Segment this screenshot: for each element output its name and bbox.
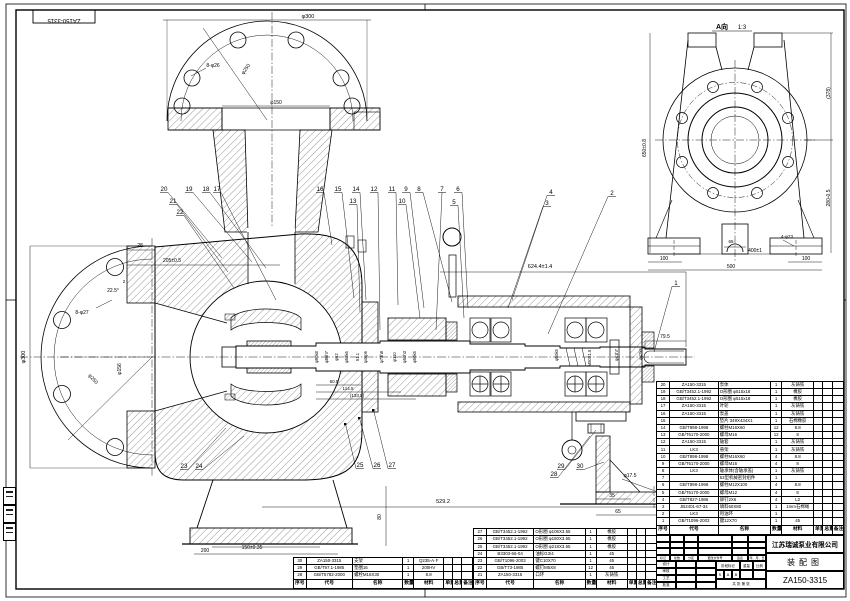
balloon-leader — [508, 207, 543, 309]
bom-cell — [636, 543, 645, 550]
balloon-number: 22 — [177, 209, 184, 216]
bom-row: 30ZA150-3315支架1Q235-A·F — [294, 557, 473, 564]
bom-cell: 1 — [657, 518, 670, 525]
sig-row-label: 批准 — [656, 582, 676, 589]
bom-cell: 支架 — [353, 557, 403, 564]
dimension-text: φ17.5 — [624, 473, 637, 479]
balloon-number: 3 — [545, 200, 549, 207]
bom-cell: O形圈 φ515x18 — [718, 396, 770, 403]
sig-row-cell — [696, 568, 716, 575]
bom-cell — [636, 565, 645, 572]
bom-row: 3JB2401-67-34填料50X8011mm石棉绳 — [657, 503, 844, 510]
bom-cell: GB/T898-1998 — [670, 482, 719, 489]
bom-row: 4GB/T827-1986铆钉2X64L2 — [657, 496, 844, 503]
dimension-text: φ50h3 — [402, 350, 407, 363]
bom-cell — [823, 482, 832, 489]
drawing-title: 装配图 — [766, 553, 844, 571]
bom-header-cell: 总重 — [823, 525, 832, 535]
bom-cell — [814, 518, 823, 525]
bom-cell: GB/T3452.1-1992 — [486, 536, 534, 543]
balloon-number: 15 — [335, 186, 342, 193]
bom-cell — [832, 403, 843, 410]
edge-zone-box — [3, 523, 16, 541]
bom-cell: 12 — [771, 432, 782, 439]
bom-cell — [814, 396, 823, 403]
bom-cell: 16 — [657, 410, 670, 417]
bom-cell: 53型机械密封组件 — [718, 475, 770, 482]
bom-row: 18GB/T3452.1-1992O形圈 φ515x181橡胶 — [657, 396, 844, 403]
bom-header-row: 序号代号名称数量材料单重总重备注 — [294, 579, 473, 589]
bom-cell: 螺柱M16X60 — [718, 453, 770, 460]
dimension-text: φ250 — [87, 373, 99, 386]
bom-cell — [646, 565, 657, 572]
stage-label: 阶段标记 — [716, 561, 740, 570]
bom-cell — [832, 453, 843, 460]
balloon-number: 19 — [186, 186, 193, 193]
bom-row: 19GB/T3452.1-1992O形圈 φ515x181橡胶 — [657, 388, 844, 395]
bom-row: 15垫片 349X434X11石棉橡胶 — [657, 417, 844, 424]
bom-cell: 口环 — [534, 572, 585, 579]
parts-list-middle: 27GB/T3452.1-1992O形圈 φ106X3.551橡胶26GB/T3… — [473, 528, 657, 589]
bom-cell: 4 — [771, 460, 782, 467]
balloon-number: 9 — [404, 186, 408, 193]
bom-cell — [832, 381, 843, 388]
dimension-text: (133.5) — [350, 393, 365, 398]
balloon-leader — [462, 193, 468, 309]
bom-row: 11LK3悬架1灰铸铁 — [657, 446, 844, 453]
dimension-text: 65 — [728, 239, 734, 244]
dimension-text: φ90k8 — [314, 350, 319, 362]
bom-cell: 1 — [771, 410, 782, 417]
balloon-leader — [558, 436, 590, 478]
bom-cell — [814, 468, 823, 475]
bom-cell: 螺栓M16X30 — [353, 572, 403, 579]
bom-cell: LK3 — [670, 468, 719, 475]
sig-row-label: 审核 — [656, 568, 676, 575]
bom-cell — [832, 482, 843, 489]
bom-cell: GB/T3452.1-1992 — [486, 529, 534, 536]
dimension-text: 529.2 — [436, 499, 450, 505]
bom-cell: ZA150-3315 — [670, 439, 719, 446]
bom-cell — [823, 518, 832, 525]
dimension-text: 65 — [615, 509, 621, 515]
bom-cell: 螺柱M12X100 — [718, 482, 770, 489]
bom-cell: 1 — [403, 557, 414, 564]
scale-value — [753, 570, 766, 579]
bom-row: 8LK3轴承体(含轴承盖)1灰铸铁 — [657, 468, 844, 475]
bom-header-cell: 总重 — [636, 579, 645, 589]
bom-cell — [462, 572, 473, 579]
dimension-text: 4-φ23 — [781, 234, 793, 239]
sig-row-cell — [696, 561, 716, 568]
dimension-text: 100 — [660, 256, 669, 262]
bom-cell: 8.8 — [782, 424, 814, 431]
bom-cell — [814, 424, 823, 431]
dimension-text: 205±0.5 — [163, 258, 181, 264]
dimension-text: 100 — [802, 256, 811, 262]
edge-zone-box — [3, 505, 16, 523]
bom-cell: ZA150-3315 — [670, 381, 719, 388]
bom-cell: 填料50X80 — [718, 503, 770, 510]
bom-cell: 18 — [657, 396, 670, 403]
sig-row-cell — [696, 582, 716, 589]
bom-cell: 叶轮 — [718, 403, 770, 410]
bom-cell: 2 — [657, 511, 670, 518]
bom-cell: GB/T3452.1-1992 — [670, 396, 719, 403]
bom-cell — [823, 446, 832, 453]
bom-cell — [823, 460, 832, 467]
bom-cell: GB/T1096-2003 — [670, 518, 719, 525]
bom-header-cell: 总重 — [453, 579, 462, 589]
bom-row: 12ZA150-3315轴套1灰铸铁 — [657, 439, 844, 446]
bom-cell: 1 — [585, 557, 596, 564]
bom-row: 27GB/T3452.1-1992O形圈 φ106X3.551橡胶 — [474, 529, 657, 536]
bom-cell — [814, 403, 823, 410]
bom-cell: 1 — [771, 468, 782, 475]
bom-cell — [444, 557, 453, 564]
bom-cell: 200HV — [413, 565, 443, 572]
bom-cell: 4 — [771, 482, 782, 489]
balloon-number: 17 — [214, 186, 221, 193]
bom-cell: 20 — [657, 381, 670, 388]
bom-cell: 4 — [771, 489, 782, 496]
bom-cell: 螺母M16 — [718, 460, 770, 467]
bom-cell — [814, 460, 823, 467]
bom-cell — [814, 432, 823, 439]
sig-row-label: 工艺 — [656, 575, 676, 582]
balloon-number: 14 — [353, 186, 360, 193]
bom-cell — [814, 496, 823, 503]
balloon-leader — [406, 205, 420, 319]
bom-cell: GB/T5782-2000 — [306, 572, 353, 579]
bom-cell: GB/T3452.1-1992 — [670, 388, 719, 395]
bom-header-cell: 序号 — [474, 579, 487, 589]
bom-header-cell: 备注 — [646, 579, 657, 589]
balloon-number: 2 — [610, 190, 614, 197]
balloon-number: 24 — [196, 463, 203, 470]
dimension-text: φ50k5 — [412, 350, 417, 362]
bom-cell — [832, 511, 843, 518]
bom-cell — [814, 439, 823, 446]
bom-header-cell: 代号 — [306, 579, 353, 589]
bom-cell: 45 — [596, 550, 627, 557]
bom-cell — [453, 557, 462, 564]
bom-cell — [832, 475, 843, 482]
balloon-number: 27 — [389, 462, 396, 469]
bom-cell: 1 — [585, 529, 596, 536]
weight-label: 重量 — [740, 561, 753, 570]
bom-cell — [823, 424, 832, 431]
bom-cell: 28 — [294, 572, 307, 579]
bom-cell: 泵体 — [718, 381, 770, 388]
bom-cell: 8 — [782, 432, 814, 439]
bom-cell: 1 — [585, 536, 596, 543]
bom-row: 21ZA150-3315口环1灰铸铁 — [474, 572, 657, 579]
bom-cell — [782, 511, 814, 518]
bom-header-cell: 材料 — [413, 579, 443, 589]
bom-cell — [823, 381, 832, 388]
bom-cell — [627, 543, 636, 550]
bom-cell — [832, 489, 843, 496]
bom-cell: 14 — [657, 424, 670, 431]
bom-cell — [627, 536, 636, 543]
bom-cell: 1mm石棉绳 — [782, 503, 814, 510]
bom-cell: 1 — [771, 388, 782, 395]
bom-cell — [832, 446, 843, 453]
bom-cell: LK3 — [670, 511, 719, 518]
bom-cell: 键12X70 — [718, 518, 770, 525]
bom-cell: 1 — [771, 503, 782, 510]
bom-cell — [636, 572, 645, 579]
bom-cell — [627, 565, 636, 572]
dimension-text: 624.4±1.4 — [528, 264, 552, 270]
bom-cell: 灰铸铁 — [596, 572, 627, 579]
company-name: 江苏瑞诚泵业有限公司 — [766, 535, 844, 553]
bom-cell — [814, 388, 823, 395]
bom-cell: 1 — [771, 403, 782, 410]
bom-header-row: 序号代号名称数量材料单重总重备注 — [657, 525, 844, 535]
bom-cell: 螺柱M16X60 — [718, 424, 770, 431]
balloon-number: 20 — [161, 186, 168, 193]
bom-cell — [823, 489, 832, 496]
bom-cell: 11 — [657, 446, 670, 453]
bom-cell — [823, 511, 832, 518]
dimension-text: 650±0.8 — [642, 139, 648, 157]
bom-cell: JB2401-67-34 — [670, 503, 719, 510]
balloon-leader — [423, 193, 452, 303]
bom-cell — [814, 475, 823, 482]
bom-cell: 45 — [596, 557, 627, 564]
bom-cell: 4 — [771, 453, 782, 460]
bom-header-cell: 代号 — [670, 525, 719, 535]
bom-cell: 1 — [771, 381, 782, 388]
bom-cell: GB/T97.1-1985 — [306, 565, 353, 572]
bom-row: 2LK3甩油环1 — [657, 511, 844, 518]
bom-cell — [832, 396, 843, 403]
balloon-number: 12 — [371, 186, 378, 193]
bom-header-cell: 数量 — [585, 579, 596, 589]
bom-cell: GB/T898-1998 — [670, 453, 719, 460]
bom-cell: 8.8 — [782, 482, 814, 489]
bom-cell — [782, 475, 814, 482]
stage-mark-b: B — [732, 570, 740, 579]
dimension-text: φ46p6 — [363, 350, 368, 363]
bom-row: 5GB/T6170-2000螺母M1248 — [657, 489, 844, 496]
dimension-text: φ42k6 — [638, 347, 643, 359]
balloon-number: 8 — [417, 186, 421, 193]
bom-cell: ZA150-3315 — [306, 557, 353, 564]
bom-cell — [832, 424, 843, 431]
balloon-leader — [548, 197, 608, 335]
bom-header-cell: 名称 — [353, 579, 403, 589]
bom-cell: 1 — [771, 475, 782, 482]
bom-cell: 1 — [771, 511, 782, 518]
bom-cell — [453, 572, 462, 579]
bom-cell: O形圈 φ515x18 — [718, 388, 770, 395]
dimension-text: 60.5 — [330, 379, 339, 384]
bom-cell — [832, 388, 843, 395]
bom-cell — [814, 489, 823, 496]
bom-header-cell: 名称 — [718, 525, 770, 535]
bom-cell: 12 — [657, 439, 670, 446]
dimension-text: 114.5 — [343, 386, 354, 391]
bom-cell — [814, 511, 823, 518]
bom-header-cell: 序号 — [294, 579, 307, 589]
dimension-text: φ41h7 — [614, 348, 619, 361]
dimension-text: 8-φ27 — [75, 310, 88, 316]
dimension-text: M50X1.5 — [587, 349, 592, 366]
bom-cell: 19 — [657, 388, 670, 395]
bom-row: 25GB/T3452.1-1992O形圈 φ218X3.551橡胶 — [474, 543, 657, 550]
bom-cell — [444, 572, 453, 579]
bom-cell — [627, 529, 636, 536]
view-a-title: A向 — [716, 22, 728, 31]
dimension-text: φ300 — [21, 351, 27, 364]
sig-row-cell — [676, 582, 696, 589]
bom-cell: 1 — [585, 572, 596, 579]
dimension-text: (378) — [826, 87, 832, 99]
dimension-text: 2 — [123, 279, 126, 284]
bom-cell: 1 — [403, 565, 414, 572]
balloon-number: 7 — [440, 186, 444, 193]
bom-cell — [646, 536, 657, 543]
bom-cell: 甩油环 — [718, 511, 770, 518]
sig-row-cell — [676, 568, 696, 575]
bom-row: 20ZA150-3315泵体1灰铸铁 — [657, 381, 844, 388]
bom-row: 9GB/T6170-2000螺母M1648 — [657, 460, 844, 467]
dimension-text: φ73h8 — [379, 350, 384, 363]
bom-cell: 4 — [657, 496, 670, 503]
bom-header-cell: 数量 — [403, 579, 414, 589]
bom-cell — [453, 565, 462, 572]
bom-cell — [670, 417, 719, 424]
bom-header-cell: 单重 — [444, 579, 453, 589]
bom-cell: 铆钉2X6 — [718, 496, 770, 503]
view-a-rear — [648, 31, 833, 270]
bom-cell — [832, 417, 843, 424]
bom-cell: 油标G3/4 — [534, 550, 585, 557]
bom-cell: 8.8 — [413, 572, 443, 579]
bom-row: 24B3303-66-04油标G3/4145 — [474, 550, 657, 557]
dimension-text: φ300 — [302, 14, 315, 20]
bom-cell — [832, 410, 843, 417]
bom-cell: 橡胶 — [782, 396, 814, 403]
bom-cell: 15 — [657, 417, 670, 424]
bom-cell — [832, 518, 843, 525]
bom-cell — [832, 496, 843, 503]
bom-cell: 23 — [474, 557, 487, 564]
bom-cell — [646, 543, 657, 550]
bom-cell — [814, 446, 823, 453]
bom-cell — [462, 565, 473, 572]
sig-row-cell — [696, 575, 716, 582]
dimension-text: ZA150-3315 — [47, 17, 81, 23]
balloon-number: 5 — [452, 199, 456, 206]
bom-cell: 5 — [657, 489, 670, 496]
bom-header-cell: 备注 — [462, 579, 473, 589]
bom-cell — [832, 460, 843, 467]
bom-cell: 13 — [657, 432, 670, 439]
bom-cell — [646, 529, 657, 536]
balloon-number: 30 — [577, 463, 584, 470]
bom-cell — [636, 557, 645, 564]
bom-cell: 灰铸铁 — [782, 403, 814, 410]
bom-cell: 橡胶 — [596, 529, 627, 536]
bom-cell: 橡胶 — [782, 388, 814, 395]
bom-cell: O形圈 φ218X3.55 — [534, 543, 585, 550]
bom-cell: 1 — [771, 446, 782, 453]
weight-value — [740, 570, 753, 579]
bom-cell: 1 — [771, 439, 782, 446]
bom-cell: 灰铸铁 — [782, 446, 814, 453]
bom-cell: 30 — [294, 557, 307, 564]
bom-cell: B3303-66-04 — [486, 550, 534, 557]
balloon-number: 11 — [389, 186, 396, 193]
dimension-text: φ58k6 — [344, 350, 349, 362]
bom-cell: 泵盖 — [718, 410, 770, 417]
bom-cell: 22 — [474, 565, 487, 572]
dimension-text: 79.5 — [660, 334, 670, 340]
bom-cell: 12 — [585, 565, 596, 572]
bom-cell: 7 — [657, 475, 670, 482]
bom-cell: L2 — [782, 496, 814, 503]
balloon-leader — [374, 412, 388, 469]
bom-cell — [814, 410, 823, 417]
dimension-text: 22.5° — [107, 288, 119, 294]
bom-cell: 45 — [596, 565, 627, 572]
bom-cell — [814, 503, 823, 510]
bom-cell: 悬架 — [718, 446, 770, 453]
bom-header-cell: 序号 — [657, 525, 670, 535]
engineering-drawing-page: { "corner_label": "ZA150-3315", "view_a"… — [0, 0, 850, 601]
bom-cell — [832, 432, 843, 439]
bom-cell: 键C10X70 — [534, 557, 585, 564]
bom-cell: 29 — [294, 565, 307, 572]
bom-cell: GB/T73-1985 — [486, 565, 534, 572]
bom-row: 17ZA150-3315叶轮1灰铸铁 — [657, 403, 844, 410]
bom-cell: 灰铸铁 — [782, 381, 814, 388]
balloon-leader — [512, 196, 547, 301]
balloon-leader — [396, 193, 398, 306]
bom-cell — [832, 468, 843, 475]
dimension-text: 80 — [377, 514, 383, 520]
balloon-leader — [410, 193, 424, 309]
bom-cell: 1 — [771, 396, 782, 403]
dimension-text: 35 — [609, 493, 615, 499]
parts-list-right: 20ZA150-3315泵体1灰铸铁19GB/T3452.1-1992O形圈 φ… — [656, 381, 844, 535]
bom-row: 10GB/T898-1998螺柱M16X6048.8 — [657, 453, 844, 460]
sig-row-cell — [676, 561, 696, 568]
bom-cell: GB/T1096-2003 — [486, 557, 534, 564]
bom-cell — [670, 475, 719, 482]
balloon-number: 26 — [374, 462, 381, 469]
bom-cell — [823, 432, 832, 439]
bom-row: 26GB/T3452.1-1992O形圈 φ160X3.551橡胶 — [474, 536, 657, 543]
bom-row: 29GB/T97.1-1985垫圈161200HV — [294, 565, 473, 572]
bom-cell — [823, 388, 832, 395]
bom-cell: 21 — [474, 572, 487, 579]
bom-cell — [814, 482, 823, 489]
balloon-number: 6 — [456, 186, 460, 193]
bom-row: 23GB/T1096-2003键C10X70145 — [474, 557, 657, 564]
bom-cell: 8.8 — [782, 453, 814, 460]
view-a-scale: 1:3 — [738, 25, 747, 31]
bom-cell: 24 — [474, 550, 487, 557]
dimension-text: 280-0.5 — [826, 189, 832, 206]
bom-cell: GB/T898-1998 — [670, 424, 719, 431]
balloon-number: 28 — [551, 471, 558, 478]
bom-cell: 垫片 349X434X1 — [718, 417, 770, 424]
